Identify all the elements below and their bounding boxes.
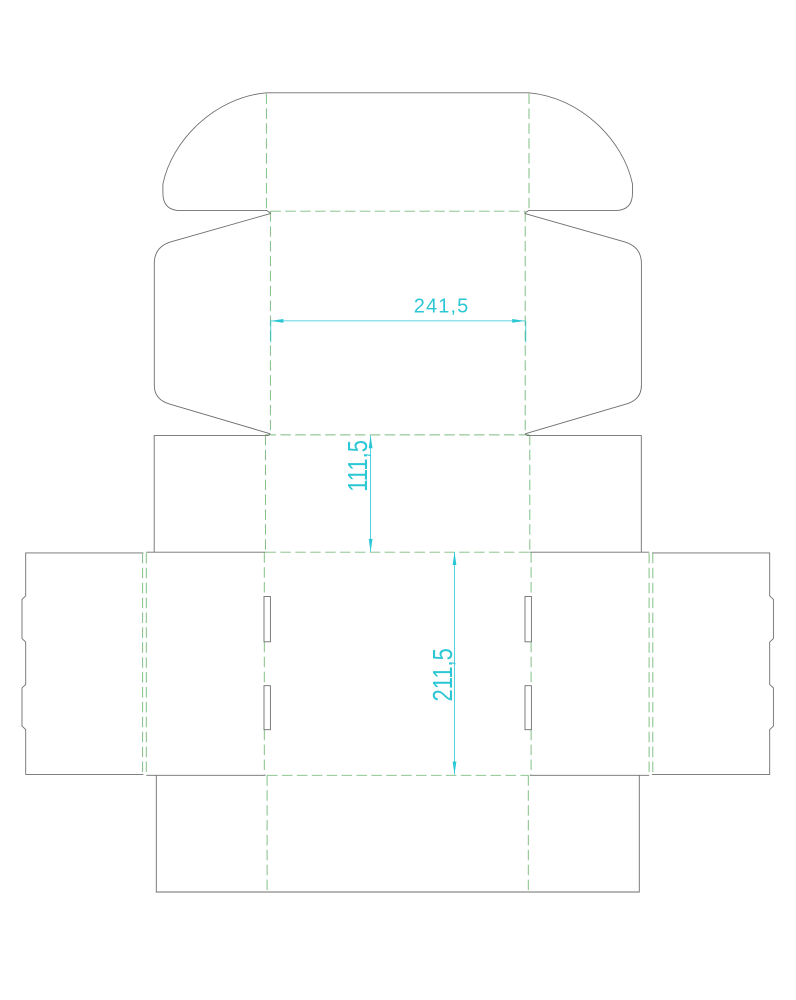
svg-text:211,5: 211,5 xyxy=(428,648,459,701)
svg-text:241,5: 241,5 xyxy=(414,296,470,318)
svg-text:111,5: 111,5 xyxy=(343,440,374,492)
